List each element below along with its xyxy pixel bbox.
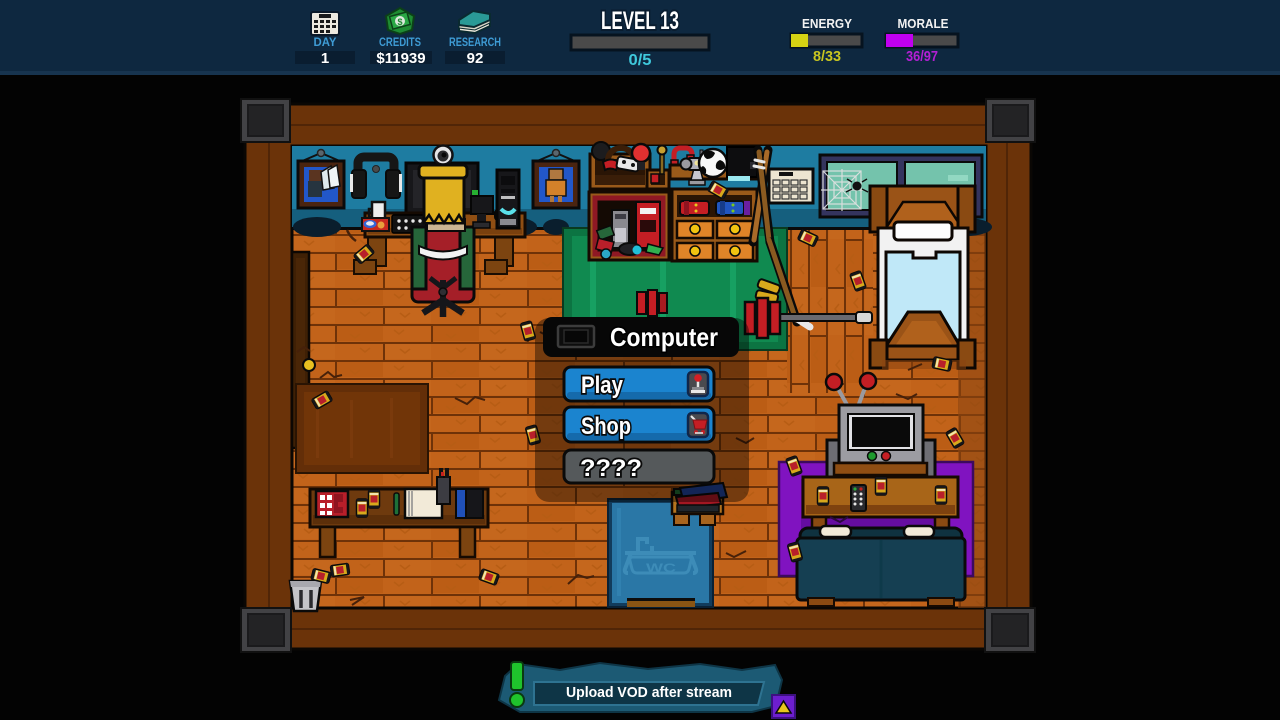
svg-text:MORALE: MORALE [898, 16, 949, 31]
svg-text:Upload VOD after stream: Upload VOD after stream [566, 684, 732, 701]
svg-text:DAY: DAY [314, 35, 337, 49]
svg-text:92: 92 [467, 50, 484, 67]
svg-text:$11939: $11939 [376, 50, 425, 67]
svg-text:Computer: Computer [610, 322, 718, 352]
svg-text:CREDITS: CREDITS [379, 35, 421, 49]
svg-text:LEVEL 13: LEVEL 13 [601, 7, 679, 35]
svg-text:????: ???? [580, 455, 642, 482]
svg-text:ENERGY: ENERGY [802, 16, 852, 31]
svg-text:Shop: Shop [581, 413, 631, 440]
svg-text:$: $ [397, 17, 402, 27]
svg-text:WC: WC [646, 561, 676, 575]
svg-text:Play: Play [581, 372, 624, 399]
svg-text:36/97: 36/97 [906, 48, 938, 65]
svg-text:1: 1 [321, 50, 329, 67]
svg-text:RESEARCH: RESEARCH [449, 35, 501, 49]
svg-text:8/33: 8/33 [813, 48, 841, 65]
svg-text:0/5: 0/5 [629, 52, 652, 69]
